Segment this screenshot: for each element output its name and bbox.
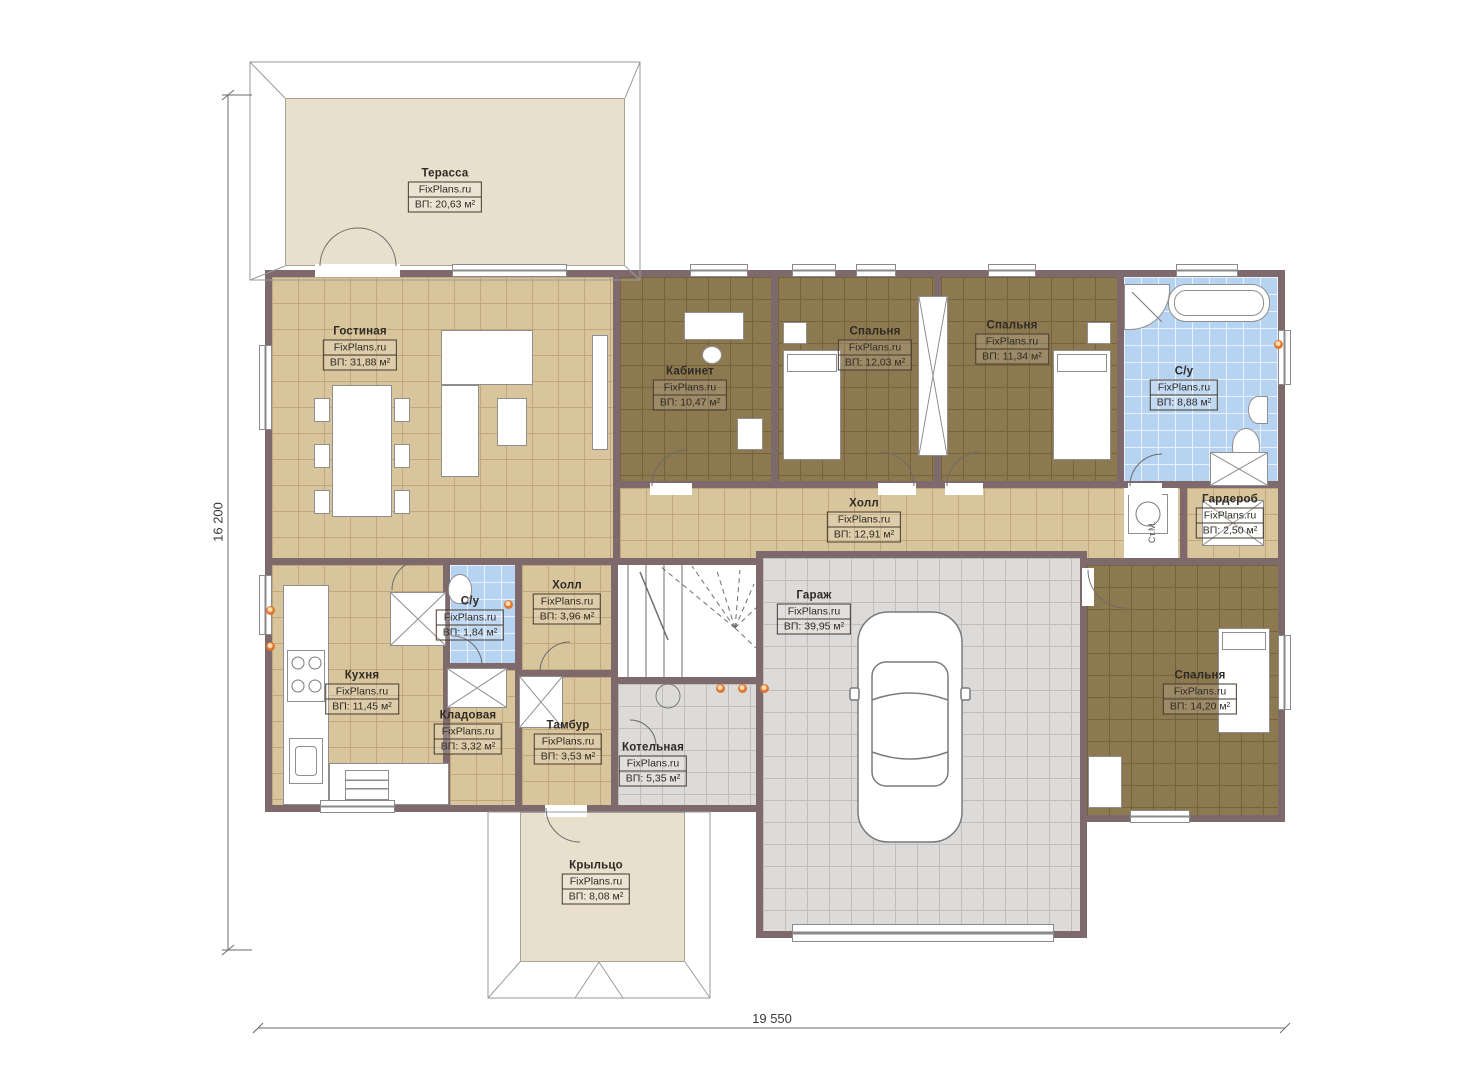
room-name: Холл (827, 498, 901, 510)
room-label-living: Гостиная FixPlans.ru ВП: 31,88 м² (323, 326, 397, 371)
coffee-table (497, 398, 527, 446)
room-name: Гардероб (1196, 494, 1264, 506)
room-area: ВП: 11,34 м² (975, 350, 1049, 365)
room-site: FixPlans.ru (653, 380, 727, 396)
room-label-bedroom-1: Спальня FixPlans.ru ВП: 12,03 м² (838, 326, 912, 371)
radiator-dot (266, 606, 275, 615)
radiator-dot (760, 684, 769, 693)
room-site: FixPlans.ru (436, 610, 504, 626)
room-site: FixPlans.ru (777, 604, 851, 620)
room-site: FixPlans.ru (325, 684, 399, 700)
room-site: FixPlans.ru (619, 756, 687, 772)
radiator-dot (1274, 340, 1283, 349)
window (1176, 264, 1238, 277)
chair (394, 444, 410, 468)
pantry-shelving (447, 668, 507, 708)
room-site: FixPlans.ru (323, 340, 397, 356)
door-gap (1128, 483, 1162, 495)
room-label-garage: Гараж FixPlans.ru ВП: 39,95 м² (777, 590, 851, 635)
room-label-boiler: Котельная FixPlans.ru ВП: 5,35 м² (619, 742, 687, 787)
room-site: FixPlans.ru (827, 512, 901, 528)
room-label-terrace: Терасса FixPlans.ru ВП: 20,63 м² (408, 168, 482, 213)
door-gap (545, 805, 587, 817)
room-name: С/у (1150, 366, 1218, 378)
room-label-vestibule: Тамбур FixPlans.ru ВП: 3,53 м² (534, 720, 602, 765)
window (452, 264, 567, 277)
window (856, 264, 896, 277)
sink (1248, 396, 1268, 424)
room-area: ВП: 10,47 м² (653, 396, 727, 411)
office-chair (702, 346, 722, 364)
pillow (787, 354, 837, 372)
room-label-hall-2: Холл FixPlans.ru ВП: 3,96 м² (533, 580, 601, 625)
chair (314, 398, 330, 422)
room-area: ВП: 14,20 м² (1163, 700, 1237, 715)
chair (394, 490, 410, 514)
room-area: ВП: 3,32 м² (434, 740, 502, 755)
kitchen-appliance (345, 770, 389, 800)
sofa (441, 330, 533, 385)
room-label-bedroom-3: Спальня FixPlans.ru ВП: 14,20 м² (1163, 670, 1237, 715)
radiator-dot (504, 600, 513, 609)
room-name: Спальня (975, 320, 1049, 332)
room-name: Спальня (838, 326, 912, 338)
stove (287, 650, 325, 702)
window (1278, 330, 1291, 385)
room-label-bedroom-2: Спальня FixPlans.ru ВП: 11,34 м² (975, 320, 1049, 365)
room-name: Кладовая (434, 710, 502, 722)
room-area: ВП: 1,84 м² (436, 626, 504, 641)
door-gap (878, 483, 916, 495)
room-name: С/у (436, 596, 504, 608)
garage-door (792, 924, 1054, 942)
window (1278, 635, 1291, 710)
room-site: FixPlans.ru (975, 334, 1049, 350)
room-area: ВП: 20,63 м² (408, 198, 482, 213)
room-area: ВП: 39,95 м² (777, 620, 851, 635)
terrace-door-gap (315, 264, 400, 277)
window (988, 264, 1036, 277)
kitchen-sink-bowl (295, 746, 317, 776)
bath-closet (1210, 452, 1268, 486)
nightstand (1087, 322, 1111, 344)
room-name: Крыльцо (562, 860, 630, 872)
pillow (1222, 632, 1266, 650)
room-site: FixPlans.ru (1196, 508, 1264, 524)
window (690, 264, 748, 277)
chair (394, 398, 410, 422)
window (259, 575, 272, 635)
room-label-wc: С/у FixPlans.ru ВП: 1,84 м² (436, 596, 504, 641)
room-label-porch: Крыльцо FixPlans.ru ВП: 8,08 м² (562, 860, 630, 905)
room-site: FixPlans.ru (534, 734, 602, 750)
nightstand (783, 322, 807, 344)
dimension-height: 16 200 (211, 502, 226, 542)
room-site: FixPlans.ru (1150, 380, 1218, 396)
room-area: ВП: 11,45 м² (325, 700, 399, 715)
radiator-dot (716, 684, 725, 693)
window (1130, 810, 1190, 823)
room-area: ВП: 2,50 м² (1196, 524, 1264, 539)
room-name: Кабинет (653, 366, 727, 378)
room-area: ВП: 3,96 м² (533, 610, 601, 625)
bench (1088, 756, 1122, 808)
room-area: ВП: 8,08 м² (562, 890, 630, 905)
room-label-office: Кабинет FixPlans.ru ВП: 10,47 м² (653, 366, 727, 411)
room-label-kitchen: Кухня FixPlans.ru ВП: 11,45 м² (325, 670, 399, 715)
room-name: Терасса (408, 168, 482, 180)
room-stairs (611, 558, 763, 684)
window (320, 800, 395, 813)
door-gap (945, 483, 983, 495)
room-name: Холл (533, 580, 601, 592)
room-name: Котельная (619, 742, 687, 754)
room-site: FixPlans.ru (838, 340, 912, 356)
pillow (1057, 354, 1107, 372)
wardrobe-cabinet (918, 296, 948, 456)
radiator-dot (738, 684, 747, 693)
room-label-hall: Холл FixPlans.ru ВП: 12,91 м² (827, 498, 901, 543)
room-label-pantry: Кладовая FixPlans.ru ВП: 3,32 м² (434, 710, 502, 755)
radiator-dot (266, 642, 275, 651)
room-area: ВП: 12,91 м² (827, 528, 901, 543)
door-gap (650, 483, 692, 495)
room-site: FixPlans.ru (1163, 684, 1237, 700)
door-gap (1082, 568, 1094, 606)
room-site: FixPlans.ru (562, 874, 630, 890)
dimension-width: 19 550 (752, 1011, 792, 1026)
room-name: Гараж (777, 590, 851, 602)
chair (314, 444, 330, 468)
room-name: Тамбур (534, 720, 602, 732)
cabinet (737, 418, 763, 450)
sofa-chaise (441, 385, 479, 477)
room-area: ВП: 8,88 м² (1150, 396, 1218, 411)
room-name: Спальня (1163, 670, 1237, 682)
washing-machine-label: Ст.М. (1147, 521, 1157, 543)
room-label-bathroom: С/у FixPlans.ru ВП: 8,88 м² (1150, 366, 1218, 411)
floor-plan: Ст.М. (0, 0, 1474, 1080)
dining-table (332, 385, 392, 517)
room-site: FixPlans.ru (408, 182, 482, 198)
room-name: Кухня (325, 670, 399, 682)
room-area: ВП: 31,88 м² (323, 356, 397, 371)
room-site: FixPlans.ru (533, 594, 601, 610)
tv-stand (592, 335, 608, 450)
bathtub-inner (1174, 290, 1264, 316)
room-area: ВП: 5,35 м² (619, 772, 687, 787)
chair (314, 490, 330, 514)
room-name: Гостиная (323, 326, 397, 338)
room-site: FixPlans.ru (434, 724, 502, 740)
room-area: ВП: 3,53 м² (534, 750, 602, 765)
room-label-wardrobe: Гардероб FixPlans.ru ВП: 2,50 м² (1196, 494, 1264, 539)
window (259, 345, 272, 430)
room-area: ВП: 12,03 м² (838, 356, 912, 371)
window (792, 264, 836, 277)
desk (684, 312, 744, 340)
